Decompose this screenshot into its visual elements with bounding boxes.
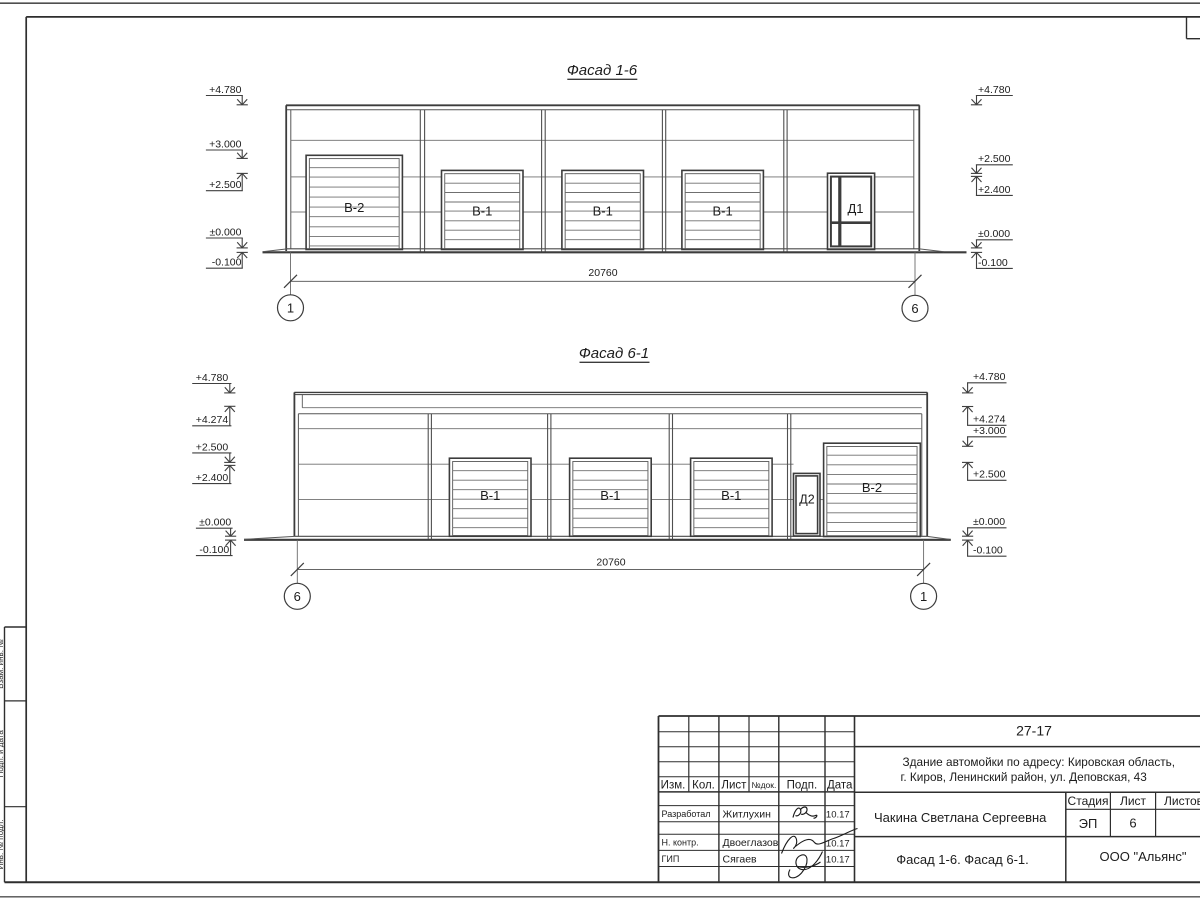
svg-text:В-2: В-2 <box>862 480 882 495</box>
svg-text:Двоеглазов: Двоеглазов <box>723 837 779 849</box>
svg-text:6: 6 <box>1129 816 1136 831</box>
svg-text:Листов: Листов <box>1164 794 1200 808</box>
svg-text:+4.780: +4.780 <box>209 84 242 96</box>
svg-text:-0.100: -0.100 <box>199 544 229 556</box>
svg-text:Подп. и дата: Подп. и дата <box>0 730 5 778</box>
svg-text:Лист: Лист <box>1120 794 1147 808</box>
svg-text:Изм.: Изм. <box>661 780 686 792</box>
svg-text:Здание автомойки по адресу: Ки: Здание автомойки по адресу: Кировская об… <box>903 755 1176 769</box>
svg-text:Кол.: Кол. <box>692 780 715 792</box>
svg-text:г. Киров, Ленинский район, ул.: г. Киров, Ленинский район, ул. Деповская… <box>901 770 1148 784</box>
svg-text:10.17: 10.17 <box>826 855 850 866</box>
svg-text:1: 1 <box>920 589 927 604</box>
svg-text:Сягаев: Сягаев <box>723 853 758 865</box>
svg-text:Н. контр.: Н. контр. <box>662 838 699 848</box>
svg-text:+3.000: +3.000 <box>209 138 242 150</box>
svg-text:Инв. № подл.: Инв. № подл. <box>0 820 5 870</box>
svg-text:Житлухин: Житлухин <box>723 808 772 820</box>
svg-text:№док.: №док. <box>751 780 776 790</box>
svg-text:10.17: 10.17 <box>826 810 850 821</box>
svg-text:-0.100: -0.100 <box>978 257 1008 269</box>
svg-text:В-1: В-1 <box>480 488 500 503</box>
svg-text:ООО "Альянс": ООО "Альянс" <box>1100 849 1187 864</box>
svg-text:Лист: Лист <box>721 780 747 792</box>
svg-text:Фасад 1-6: Фасад 1-6 <box>567 62 638 79</box>
svg-text:Фасад 1-6. Фасад 6-1.: Фасад 1-6. Фасад 6-1. <box>896 852 1029 867</box>
svg-text:Стадия: Стадия <box>1068 794 1109 808</box>
svg-text:+4.274: +4.274 <box>973 414 1006 426</box>
svg-text:±0.000: ±0.000 <box>199 517 231 529</box>
svg-text:+4.274: +4.274 <box>196 414 229 426</box>
svg-text:В-2: В-2 <box>344 200 364 215</box>
svg-text:+4.780: +4.780 <box>196 372 229 384</box>
svg-text:+2.400: +2.400 <box>978 184 1011 196</box>
svg-text:ЭП: ЭП <box>1079 816 1098 831</box>
svg-text:+2.500: +2.500 <box>973 469 1006 481</box>
svg-text:+2.400: +2.400 <box>196 472 229 484</box>
svg-text:+4.780: +4.780 <box>973 371 1006 383</box>
svg-text:-0.100: -0.100 <box>973 545 1003 557</box>
svg-text:+2.500: +2.500 <box>196 441 229 453</box>
svg-text:±0.000: ±0.000 <box>978 228 1010 240</box>
svg-text:Чакина Светлана Сергеевна: Чакина Светлана Сергеевна <box>874 810 1047 825</box>
svg-text:В-1: В-1 <box>472 204 492 219</box>
svg-text:Взам. инв. №: Взам. инв. № <box>0 639 5 689</box>
svg-text:Дата: Дата <box>827 780 853 792</box>
svg-text:±0.000: ±0.000 <box>973 516 1005 528</box>
svg-text:6: 6 <box>911 301 918 316</box>
svg-text:-0.100: -0.100 <box>212 257 242 269</box>
svg-text:1: 1 <box>287 300 294 315</box>
svg-text:6: 6 <box>294 589 301 604</box>
svg-text:+2.500: +2.500 <box>978 153 1011 165</box>
svg-text:Разработал: Разработал <box>662 809 711 819</box>
svg-text:20760: 20760 <box>596 556 625 568</box>
svg-text:В-1: В-1 <box>600 488 620 503</box>
svg-text:+4.780: +4.780 <box>978 84 1011 96</box>
svg-text:27-17: 27-17 <box>1016 723 1052 739</box>
svg-text:±0.000: ±0.000 <box>209 226 241 238</box>
svg-text:Подп.: Подп. <box>787 780 818 792</box>
svg-text:В-1: В-1 <box>593 204 613 219</box>
svg-text:В-1: В-1 <box>712 204 732 219</box>
svg-text:+2.500: +2.500 <box>209 179 242 191</box>
svg-text:Д2: Д2 <box>799 493 814 507</box>
svg-text:В-1: В-1 <box>721 488 741 503</box>
svg-text:Фасад 6-1: Фасад 6-1 <box>579 345 649 362</box>
svg-text:ГИП: ГИП <box>662 854 680 864</box>
svg-text:+3.000: +3.000 <box>973 425 1006 437</box>
svg-text:20760: 20760 <box>588 267 617 279</box>
svg-text:Д1: Д1 <box>847 201 863 216</box>
